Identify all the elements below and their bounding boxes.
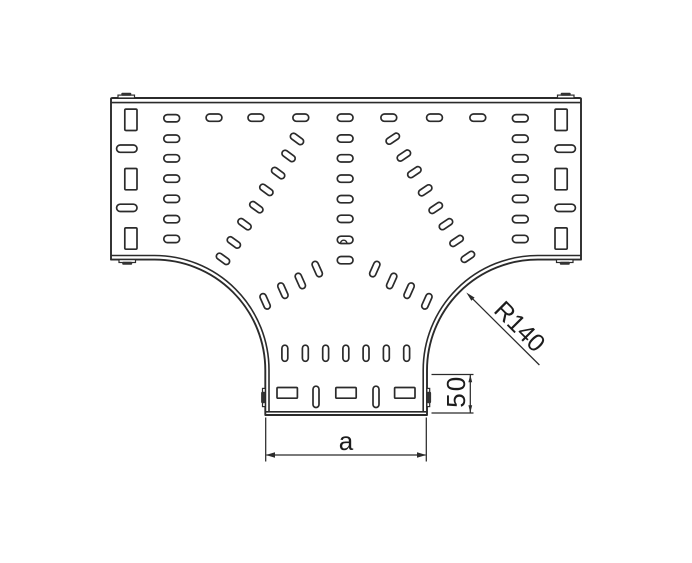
svg-text:a: a <box>339 426 354 456</box>
svg-text:R140: R140 <box>488 296 550 358</box>
svg-text:50: 50 <box>441 375 471 408</box>
